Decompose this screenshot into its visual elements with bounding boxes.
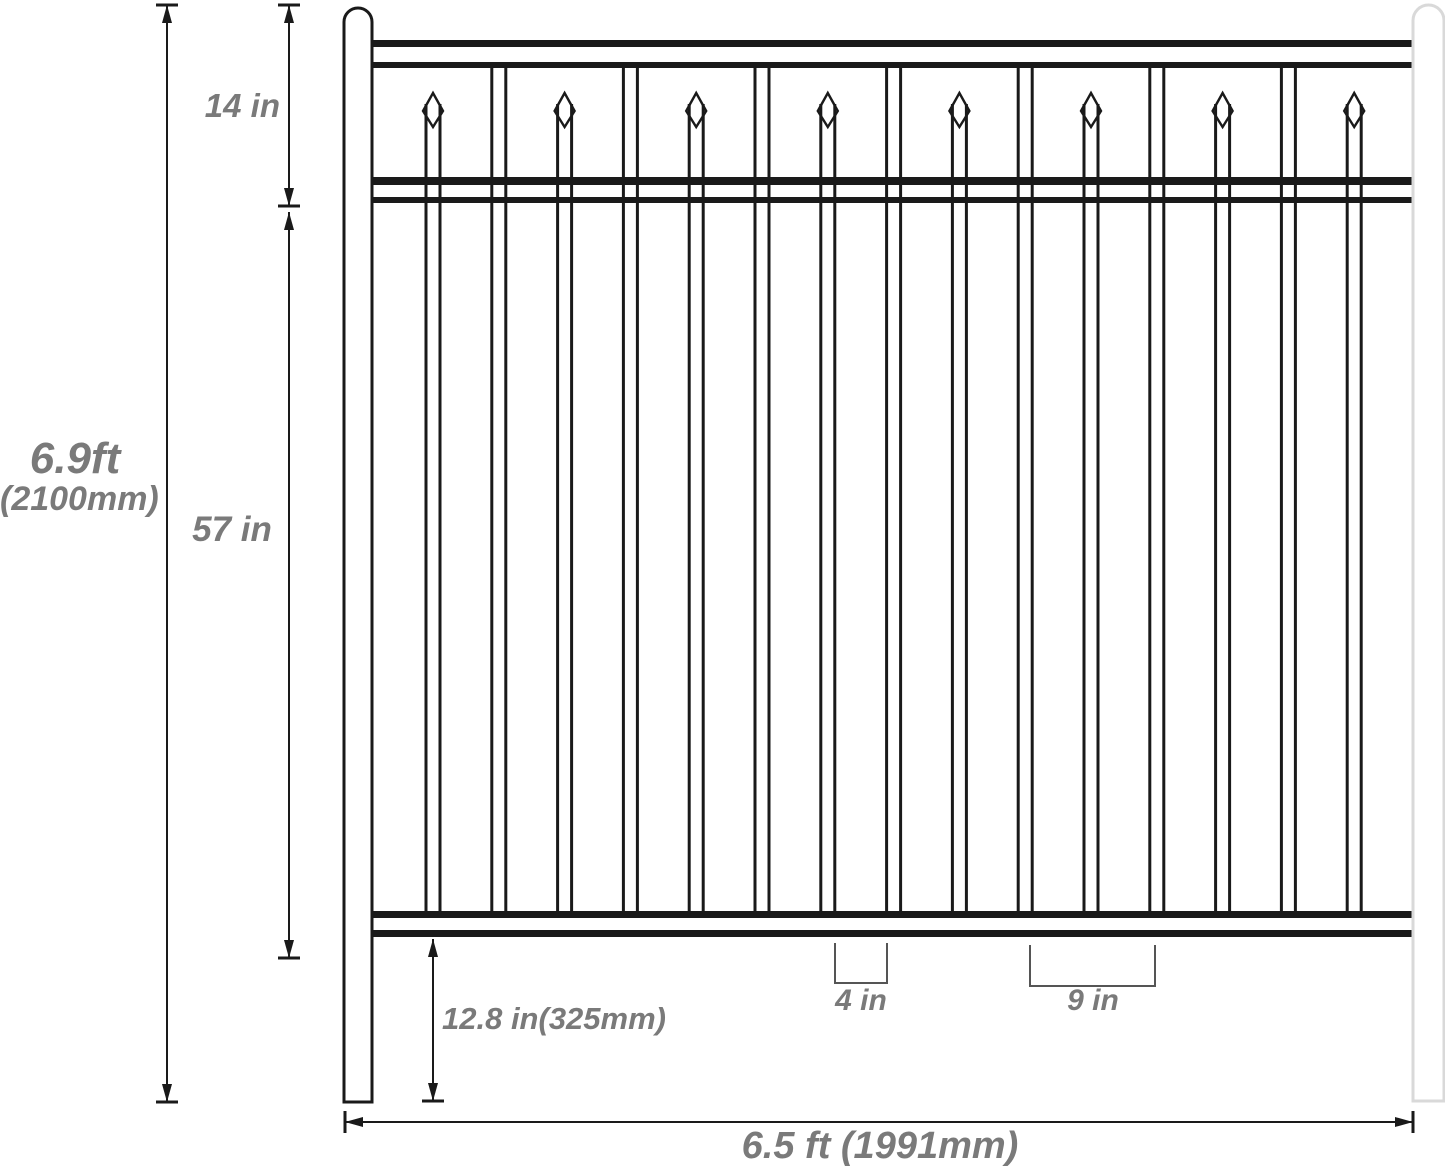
picket-spear <box>555 93 575 911</box>
left-post <box>344 8 372 1102</box>
label-picket-spacing: 9 in <box>1033 986 1153 1016</box>
dimension-top-section <box>278 5 300 206</box>
picket-plain <box>1018 62 1032 911</box>
label-overall-height-mm: (2100mm) <box>0 482 158 516</box>
picket-plain <box>492 62 506 911</box>
label-picket-section-height: 57 in <box>180 512 284 547</box>
label-overall-width: 6.5 ft (1991mm) <box>680 1127 1080 1165</box>
picket-plain <box>887 62 901 911</box>
label-ground-clearance: 12.8 in(325mm) <box>442 1003 666 1034</box>
label-top-section-height: 14 in <box>148 89 280 122</box>
label-picket-gap: 4 in <box>801 986 921 1016</box>
picket-plain <box>1150 62 1164 911</box>
right-post <box>1413 5 1444 1101</box>
picket-spear <box>1344 93 1364 911</box>
picket-spear <box>1213 93 1233 911</box>
diagram-canvas: 6.9ft (2100mm) 14 in 57 in 12.8 in(325mm… <box>0 0 1445 1169</box>
label-overall-height-ft: 6.9ft <box>0 437 150 481</box>
bracket-9in <box>1030 945 1155 986</box>
picket-spear <box>423 93 443 911</box>
picket-spear <box>686 93 706 911</box>
fence-panel-drawing <box>0 0 1445 1169</box>
bottom-rail <box>372 911 1413 937</box>
picket-spear <box>1081 93 1101 911</box>
dimension-picket-section <box>278 212 300 958</box>
picket-plain <box>755 62 769 911</box>
picket-spear <box>818 93 838 911</box>
picket-spear <box>949 93 969 911</box>
picket-plain <box>1281 62 1295 911</box>
top-rail <box>372 40 1413 68</box>
dimension-overall-height <box>156 5 178 1102</box>
dimension-ground-clearance <box>422 939 444 1101</box>
picket-plain <box>623 62 637 911</box>
bracket-4in <box>835 943 887 983</box>
